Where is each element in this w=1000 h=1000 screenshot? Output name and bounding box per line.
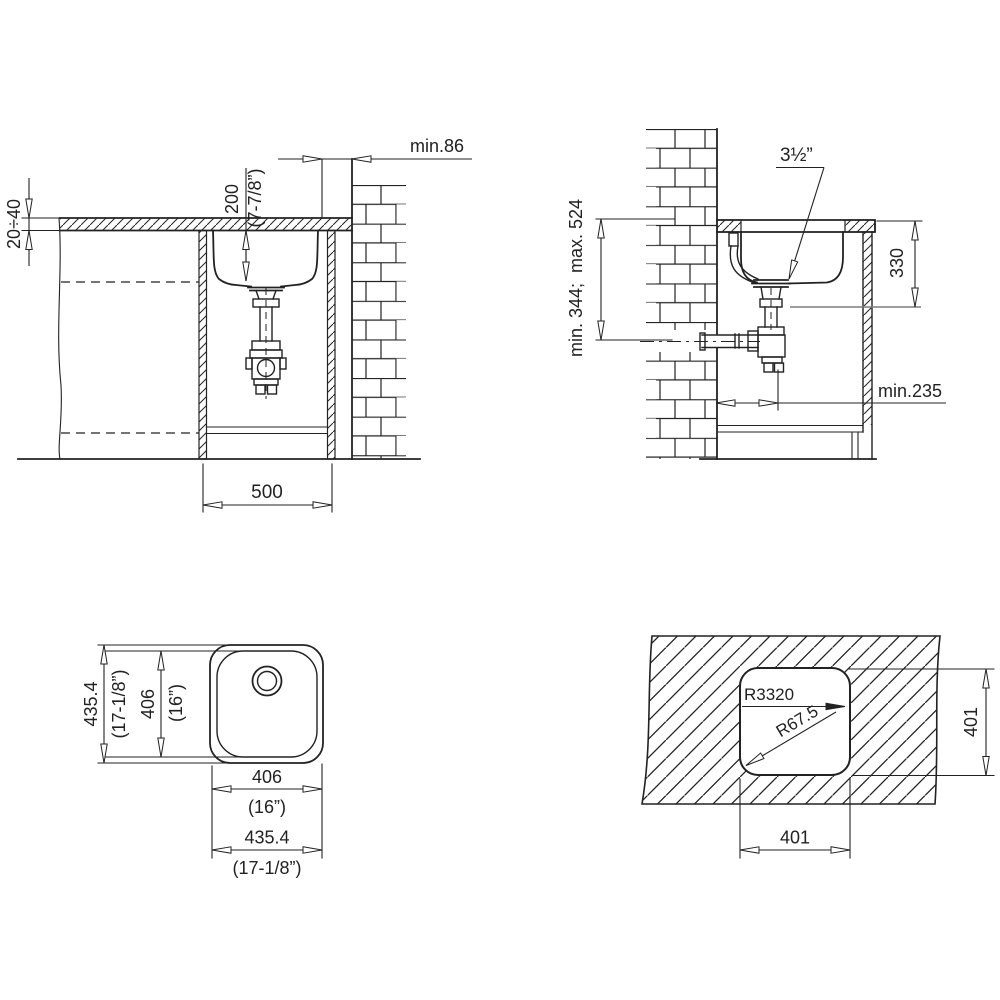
dim-label-min-wall-clearance: min.86: [410, 136, 464, 156]
dim-label-outer-height-mm: 435.4: [81, 681, 101, 726]
dim-label-cabinet-width: 500: [251, 482, 283, 503]
brick-wall-right: [352, 159, 408, 459]
dim-label-wall-to-drain: min.235: [878, 381, 942, 401]
sink-installation-drawing: min.86 200 (7-7/8”) 20÷40 500: [0, 0, 1000, 1000]
dim-label-bowl-height-mm: 406: [138, 689, 158, 719]
dim-label-edge-radius: R3320: [744, 685, 794, 704]
dimension-countertop-thickness: 20÷40: [4, 178, 29, 266]
dim-label-countertop-thickness: 20÷40: [4, 199, 24, 249]
dimension-waste-size: 3½”: [776, 145, 824, 279]
drain-trap: [246, 288, 286, 400]
dim-label-outer-height-in: (17-1/8”): [109, 669, 129, 738]
dim-label-bowl-height-in: (16”): [166, 684, 186, 722]
dim-label-cutout-height: 401: [961, 707, 981, 737]
sink-bowl-front: [741, 232, 843, 284]
view-plan: 435.4 (17-1/8”) 406 (16”) 406 (16”) 435.…: [81, 645, 323, 878]
dimension-rim-to-outlet: 330: [877, 221, 922, 307]
dim-label-outer-width-in: (17-1/8”): [232, 858, 301, 878]
technical-drawing-sheet: min.86 200 (7-7/8”) 20÷40 500: [0, 0, 1000, 1000]
dimension-wall-to-drain: min.235: [716, 370, 946, 410]
plan-sink-outline: [210, 645, 323, 763]
countertop-front: [717, 220, 875, 232]
sink-bowl-section: [213, 231, 318, 287]
dim-label-bowl-depth-mm: 200: [222, 184, 242, 214]
dim-label-outer-width-mm: 435.4: [244, 828, 289, 848]
dim-label-bowl-width-mm: 406: [252, 767, 282, 787]
dim-label-waste-size: 3½”: [780, 145, 813, 166]
view-front-section: 3½” min. 344; max. 524 330 min.235: [566, 129, 946, 459]
countertop-section: [22, 218, 352, 231]
dim-label-rim-to-outlet: 330: [887, 248, 907, 278]
overflow-tube: [729, 233, 758, 283]
dimension-cabinet-width: 500: [203, 464, 332, 512]
cabinet-front: [700, 232, 876, 459]
plan-dimensions-vertical: 435.4 (17-1/8”) 406 (16”): [81, 645, 256, 763]
view-cutout-template: R3320 R67.5 401 401: [642, 636, 994, 858]
dim-label-outlet-height-range: min. 344; max. 524: [566, 199, 586, 357]
dim-label-cutout-width: 401: [780, 828, 810, 848]
plan-dimensions-horizontal: 406 (16”) 435.4 (17-1/8”): [212, 764, 322, 878]
dim-label-bowl-width-in: (16”): [248, 797, 286, 817]
dim-label-bowl-depth-in: (7-7/8”): [245, 168, 265, 227]
brick-wall-left: [640, 129, 718, 459]
view-side-section: min.86 200 (7-7/8”) 20÷40 500: [4, 136, 472, 512]
